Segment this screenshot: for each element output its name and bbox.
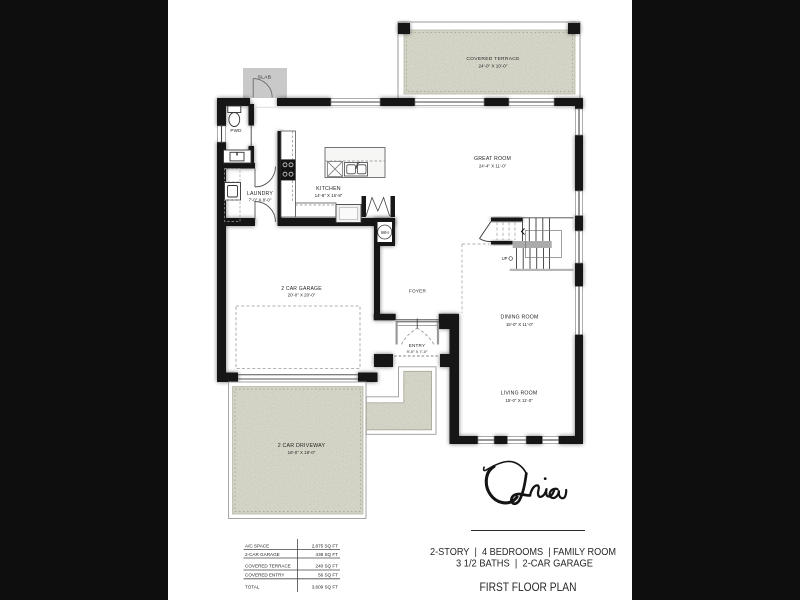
svg-text:FIRST FLOOR PLAN: FIRST FLOOR PLAN [480, 580, 577, 594]
svg-text:WH: WH [381, 230, 390, 236]
svg-text:3 1/2 BATHS | 2-CAR GARAGE: 3 1/2 BATHS | 2-CAR GARAGE [456, 558, 593, 570]
svg-text:TOTAL: TOTAL [245, 585, 260, 590]
svg-text:KITCHEN: KITCHEN [316, 186, 341, 192]
svg-text:2,875 SQ FT: 2,875 SQ FT [312, 544, 338, 549]
svg-text:COVERED ENTRY: COVERED ENTRY [245, 573, 284, 578]
svg-text:9′-0″ X 7′-0″: 9′-0″ X 7′-0″ [407, 349, 428, 354]
svg-text:24′-4″ X 11′-0″: 24′-4″ X 11′-0″ [479, 164, 507, 169]
svg-text:PWD: PWD [230, 128, 242, 133]
svg-text:DINING ROOM: DINING ROOM [501, 315, 539, 321]
svg-text:14′-8″ X 15′-8″: 14′-8″ X 15′-8″ [315, 193, 343, 198]
svg-text:2 CAR DRIVEWAY: 2 CAR DRIVEWAY [278, 443, 326, 449]
svg-text:3,609 SQ FT: 3,609 SQ FT [312, 585, 338, 590]
svg-text:LAUNDRY: LAUNDRY [247, 191, 273, 197]
svg-text:A/C SPACE: A/C SPACE [245, 544, 269, 549]
svg-text:240 SQ FT: 240 SQ FT [316, 564, 339, 569]
svg-text:2 CAR GARAGE: 2 CAR GARAGE [281, 286, 322, 292]
svg-text:ENTRY: ENTRY [409, 343, 426, 348]
svg-text:18′-0″ X 18′-0″: 18′-0″ X 18′-0″ [288, 450, 316, 455]
svg-text:COVERED TERRACE: COVERED TERRACE [245, 564, 291, 569]
svg-text:COVERED TERRACE: COVERED TERRACE [466, 56, 520, 62]
svg-text:15′-0″ X 11′-0″: 15′-0″ X 11′-0″ [506, 322, 534, 327]
svg-text:24′-0″ X 10′-0″: 24′-0″ X 10′-0″ [479, 64, 508, 69]
svg-text:20′-0″ X 20′-0″: 20′-0″ X 20′-0″ [288, 293, 316, 298]
svg-text:2-STORY | 4 BEDROOMS | FAMI: 2-STORY | 4 BEDROOMS | FAMILY ROOM [430, 546, 616, 558]
svg-text:LIVING ROOM: LIVING ROOM [501, 391, 538, 397]
svg-text:2-CAR GARAGE: 2-CAR GARAGE [245, 552, 280, 557]
svg-text:UP: UP [502, 256, 508, 261]
svg-text:15′-0″ X 11′-0″: 15′-0″ X 11′-0″ [505, 398, 533, 403]
svg-text:438 SQ FT: 438 SQ FT [316, 552, 339, 557]
svg-text:GREAT ROOM: GREAT ROOM [474, 156, 511, 162]
svg-text:56 SQ FT: 56 SQ FT [318, 573, 338, 578]
svg-text:FOYER: FOYER [409, 289, 427, 294]
